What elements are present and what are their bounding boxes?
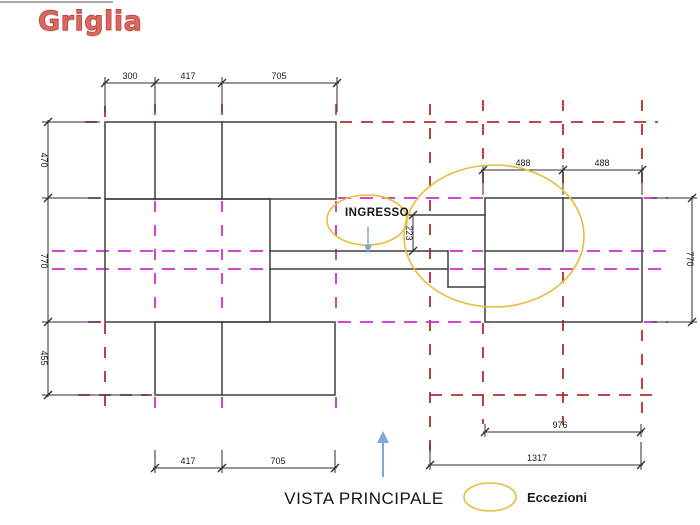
ingresso-arrowhead <box>364 245 372 253</box>
wall-bottom-block <box>155 322 335 395</box>
dim-right-770: 770 <box>685 251 695 266</box>
dim-right-top-2: 488 <box>594 158 609 168</box>
dim-bottom-left-1: 417 <box>180 456 195 466</box>
dim-top-1: 300 <box>122 71 137 81</box>
legend-ellipse <box>464 483 516 511</box>
exception-highlight-ellipse <box>404 165 584 307</box>
vista-principale-arrow <box>377 431 389 477</box>
vista-principale-label: VISTA PRINCIPALE <box>284 489 443 508</box>
building-walls <box>105 122 642 395</box>
slide: Griglia <box>0 0 700 525</box>
dim-1317: 1317 <box>527 453 547 463</box>
wall-top-block <box>105 122 336 199</box>
grid-plan-drawing: 300 417 705 470 770 455 488 488 223 770 … <box>0 0 700 525</box>
dim-bottom-left-2: 705 <box>270 456 285 466</box>
dimension-lines <box>42 77 697 473</box>
grid-lines-magenta <box>52 104 668 419</box>
dim-left-1: 470 <box>39 152 49 167</box>
dim-top-2: 417 <box>180 71 195 81</box>
dim-left-2: 770 <box>39 253 49 268</box>
dim-right-top-1: 488 <box>515 158 530 168</box>
dim-976: 976 <box>552 420 567 430</box>
legend-eccezioni-label: Eccezioni <box>527 490 587 505</box>
vista-arrowhead <box>377 431 389 443</box>
grid-lines-red <box>78 100 658 452</box>
dimension-ticks <box>44 79 696 472</box>
wall-main-block <box>105 199 270 322</box>
ingresso-label: INGRESSO <box>345 207 409 219</box>
dim-top-3: 705 <box>271 71 286 81</box>
dim-left-3: 455 <box>39 350 49 365</box>
ingresso-arrow <box>364 227 372 253</box>
ingresso-highlight-ellipse <box>327 195 407 245</box>
